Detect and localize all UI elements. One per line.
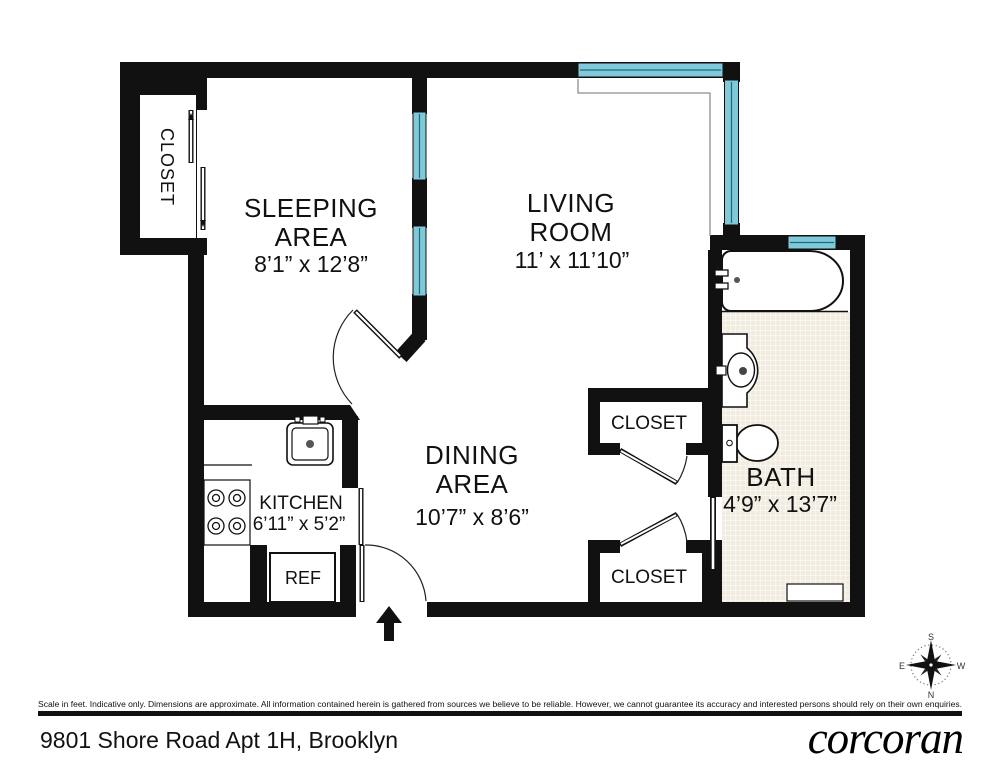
svg-text:6’11” x 5’2”: 6’11” x 5’2” <box>253 514 346 535</box>
wall-kitchen-right-upper <box>342 416 358 488</box>
compass-bottom-label: N <box>928 690 935 700</box>
wall-angled-stub <box>401 336 420 357</box>
kitchen-faucet-knob-left <box>295 417 300 422</box>
svg-text:LIVING: LIVING <box>527 188 615 218</box>
closet-lower-door-arc <box>677 514 687 542</box>
label-closet-sleeping: CLOSET <box>157 128 177 206</box>
label-kitchen: KITCHEN 6’11” x 5’2” <box>253 493 346 535</box>
svg-text:KITCHEN: KITCHEN <box>259 493 342 514</box>
sleeping-closet-sliding-doors <box>188 107 206 238</box>
floor-plan-page: SLEEPING AREA 8’1” x 12’8” LIVING ROOM 1… <box>0 0 1000 772</box>
wall-kitchen-ref-partition <box>250 545 267 602</box>
svg-text:10’7” x 8’6”: 10’7” x 8’6” <box>415 504 529 530</box>
toilet-flush-button <box>727 440 733 446</box>
kitchen-sink-drain <box>306 440 314 448</box>
label-closet-upper: CLOSET <box>611 413 687 434</box>
entry-door <box>362 545 426 602</box>
entry-arrow-icon <box>376 606 402 641</box>
wall-living-east-post-top <box>723 62 740 82</box>
bathtub-faucet-handle <box>715 283 728 289</box>
compass-right-label: W <box>957 661 966 671</box>
corcoran-logo: corcoran <box>808 713 963 763</box>
wall-closet-upper-stub-left <box>588 443 620 455</box>
compass-left-label: E <box>899 661 905 671</box>
svg-text:AREA: AREA <box>436 469 509 499</box>
bathroom-sink-drain <box>739 367 747 375</box>
wall-closet-jamb <box>196 78 207 110</box>
kitchen-faucet-knob-right <box>320 417 325 422</box>
closet-lower-door <box>620 514 687 545</box>
bathroom-fixtures <box>715 251 850 602</box>
bath-threshold <box>787 584 843 601</box>
closet-upper-door <box>620 450 687 483</box>
label-dining-area: DINING AREA 10’7” x 8’6” <box>415 440 529 530</box>
wall-left-lower <box>188 238 204 617</box>
bathtub-faucet <box>715 270 728 276</box>
wall-living-east-post-bottom <box>723 223 740 250</box>
sleeping-door-swing-arc <box>333 310 353 404</box>
wall-sleeping-living-top <box>412 62 427 114</box>
svg-text:DINING: DINING <box>425 440 519 470</box>
address-text: 9801 Shore Road Apt 1H, Brooklyn <box>40 727 398 753</box>
svg-text:AREA: AREA <box>275 222 348 252</box>
wall-kitchen-right-lower <box>340 545 356 605</box>
wall-bottom-right <box>427 602 865 617</box>
kitchen-faucet <box>303 416 318 424</box>
wall-top-left-corner <box>120 62 207 95</box>
label-refrigerator: REF <box>285 568 321 588</box>
entry-door-swing-arc <box>365 545 426 601</box>
svg-text:ROOM: ROOM <box>530 217 613 247</box>
compass-rose: S N E W <box>899 632 966 700</box>
wall-bath-left-lower <box>708 570 722 602</box>
wall-right <box>850 235 865 617</box>
wall-closet-upper-top <box>588 388 715 402</box>
compass-center <box>929 663 932 666</box>
label-living-room: LIVING ROOM 11’ x 11’10” <box>515 188 630 273</box>
svg-text:BATH: BATH <box>746 462 815 492</box>
wall-bottom-left <box>188 602 356 617</box>
svg-text:4’9” x 13’7”: 4’9” x 13’7” <box>723 491 837 517</box>
toilet-bowl <box>736 425 778 461</box>
wall-closet-lower-left <box>588 540 600 602</box>
wall-left-upper <box>120 95 140 255</box>
stove <box>204 480 250 545</box>
svg-text:11’ x 11’10”: 11’ x 11’10” <box>515 247 630 273</box>
bathroom-sink-tap <box>716 366 726 375</box>
closet-upper-door-arc <box>677 456 687 483</box>
compass-top-label: S <box>928 632 934 642</box>
bathtub <box>722 251 843 311</box>
label-sleeping-area: SLEEPING AREA 8’1” x 12’8” <box>244 193 378 277</box>
svg-text:8’1” x 12’8”: 8’1” x 12’8” <box>254 251 368 277</box>
floor-plan-drawing: SLEEPING AREA 8’1” x 12’8” LIVING ROOM 1… <box>0 0 1000 772</box>
title-block: Scale in feet. Indicative only. Dimensio… <box>38 700 963 763</box>
svg-text:SLEEPING: SLEEPING <box>244 193 378 223</box>
disclaimer-text: Scale in feet. Indicative only. Dimensio… <box>38 700 962 709</box>
label-closet-lower: CLOSET <box>611 567 687 588</box>
wall-sleeping-living-mid <box>412 178 427 228</box>
sleeping-door <box>333 310 401 404</box>
bathtub-drain <box>734 277 740 283</box>
